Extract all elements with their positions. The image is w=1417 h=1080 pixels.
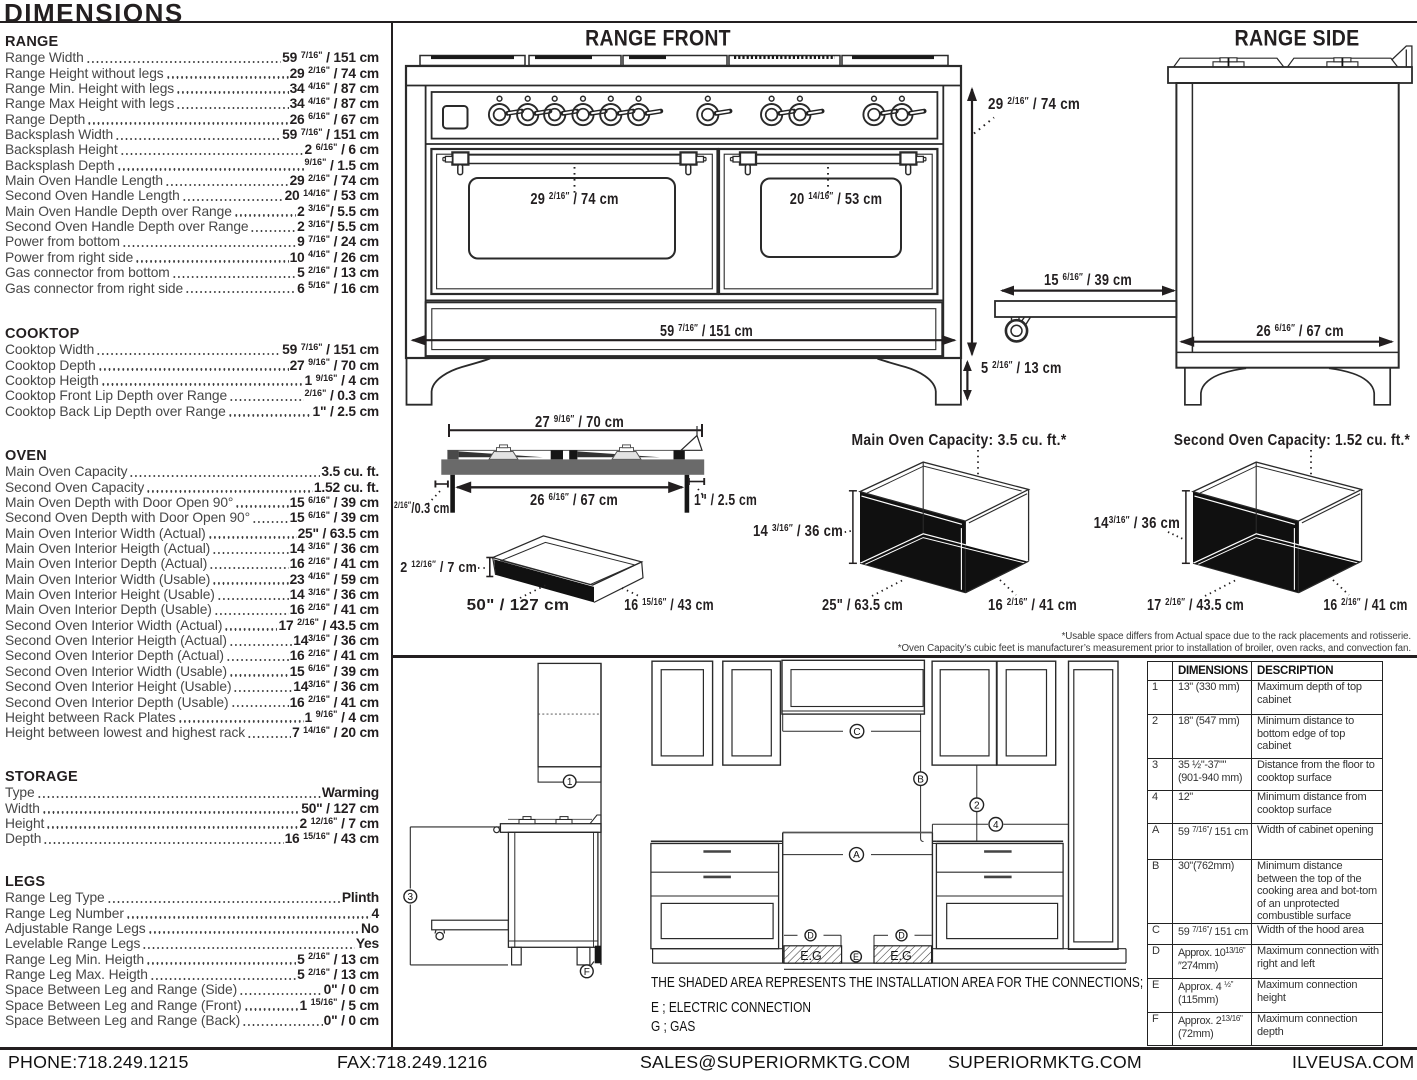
svg-text:20 14/16″ / 53 cm: 20 14/16″ / 53 cm	[790, 190, 882, 208]
svg-text:D: D	[898, 931, 905, 941]
svg-text:*Usable space differs from Act: *Usable space differs from Actual space …	[1062, 631, 1411, 642]
svg-text:E.G: E.G	[890, 949, 912, 963]
svg-text:1: 1	[567, 777, 573, 788]
svg-text:A: A	[853, 850, 860, 861]
svg-text:Main Oven Capacity: 3.5 cu. ft: Main Oven Capacity: 3.5 cu. ft.*	[852, 432, 1067, 449]
svg-text:2: 2	[974, 800, 980, 811]
svg-text:29 2/16″ / 74 cm: 29 2/16″ / 74 cm	[988, 95, 1080, 113]
svg-text:14 3/16″ / 36 cm: 14 3/16″ / 36 cm	[753, 522, 843, 540]
svg-text:1" / 2.5 cm: 1" / 2.5 cm	[694, 491, 757, 509]
svg-text:26 6/16″ / 67 cm: 26 6/16″ / 67 cm	[1256, 322, 1344, 340]
svg-text:29 2/16″ / 74 cm: 29 2/16″ / 74 cm	[530, 190, 618, 208]
svg-text:143/16″ / 36 cm: 143/16″ / 36 cm	[1094, 514, 1180, 532]
svg-text:2 12/16″ / 7 cm: 2 12/16″ / 7 cm	[400, 558, 477, 575]
svg-text:B: B	[917, 774, 924, 785]
svg-text:26 6/16″ / 67 cm: 26 6/16″ / 67 cm	[530, 491, 618, 509]
svg-text:RANGE FRONT: RANGE FRONT	[585, 26, 731, 50]
svg-text:E: E	[853, 952, 859, 962]
svg-text:17 2/16″ / 43.5 cm: 17 2/16″ / 43.5 cm	[1147, 596, 1244, 614]
svg-text:59 7/16″ / 151 cm: 59 7/16″ / 151 cm	[660, 322, 753, 340]
svg-text:16 15/16″ / 43 cm: 16 15/16″ / 43 cm	[624, 596, 714, 614]
svg-text:25" / 63.5 cm: 25" / 63.5 cm	[822, 597, 903, 615]
svg-text:D: D	[807, 931, 814, 941]
svg-text:15 6/16″ / 39 cm: 15 6/16″ / 39 cm	[1044, 271, 1132, 289]
svg-text:50" / 127 cm: 50" / 127 cm	[467, 595, 570, 613]
svg-text:*Oven Capacity’s cubic feet is: *Oven Capacity’s cubic feet is manufactu…	[898, 643, 1411, 654]
svg-text:F: F	[584, 967, 590, 978]
svg-text:16 2/16″ / 41 cm: 16 2/16″ / 41 cm	[1323, 596, 1407, 614]
svg-text:27 9/16″ / 70 cm: 27 9/16″ / 70 cm	[535, 413, 624, 431]
svg-text:Second Oven Capacity: 1.52 cu.: Second Oven Capacity: 1.52 cu. ft.*	[1174, 432, 1410, 449]
svg-text:3: 3	[408, 892, 414, 903]
svg-text:C: C	[853, 727, 860, 738]
svg-text:4: 4	[993, 820, 999, 831]
svg-text:RANGE SIDE: RANGE SIDE	[1235, 27, 1360, 51]
svg-text:16 2/16″ / 41 cm: 16 2/16″ / 41 cm	[988, 596, 1077, 614]
svg-text:5 2/16″ / 13 cm: 5 2/16″ / 13 cm	[981, 359, 1062, 377]
svg-text:E.G: E.G	[800, 949, 822, 963]
svg-text:2/16″/0.3 cm: 2/16″/0.3 cm	[394, 499, 450, 516]
